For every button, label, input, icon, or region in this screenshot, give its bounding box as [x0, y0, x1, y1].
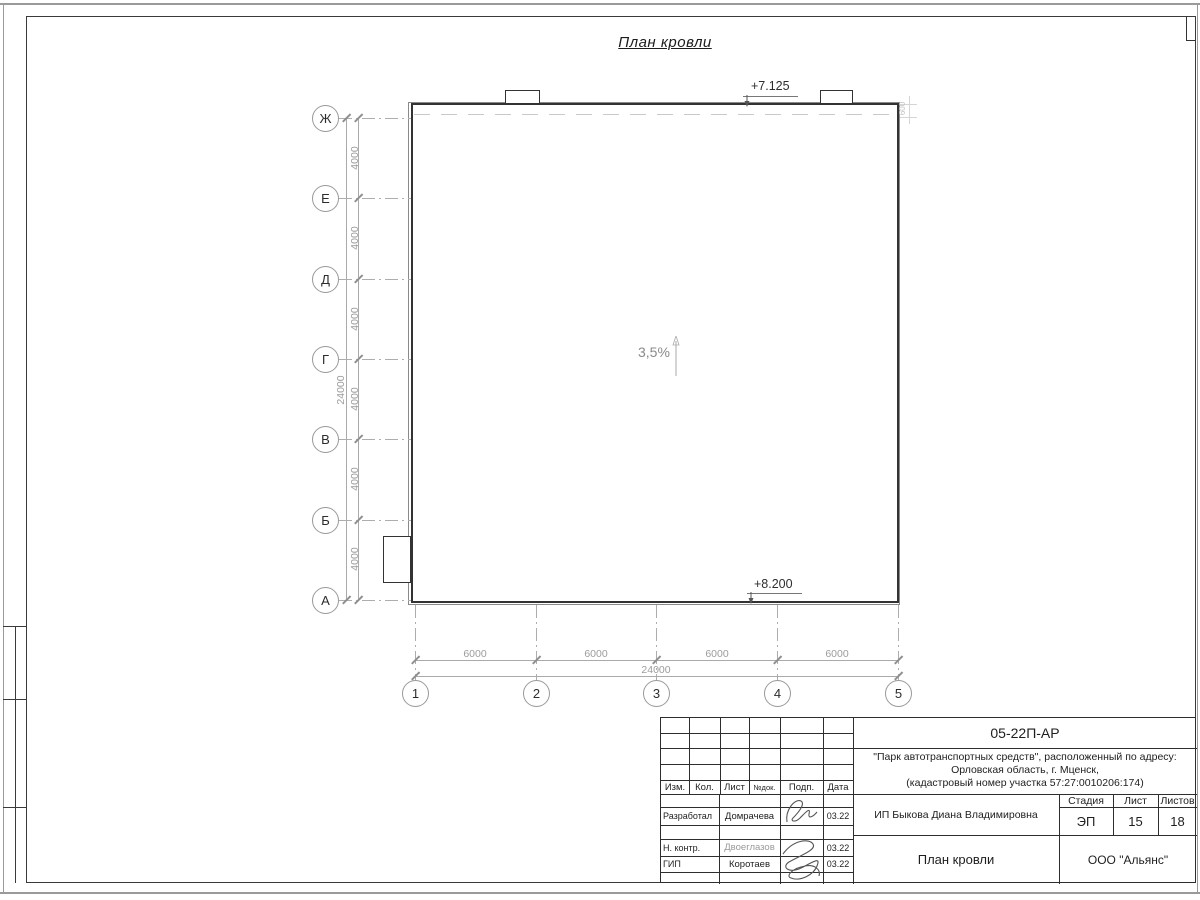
dim-label-left: 4000: [349, 539, 361, 579]
axis-number: 1: [412, 686, 419, 701]
elevation-bottom-arrow-icon: [746, 592, 756, 604]
axis-bubble-bottom: 5: [885, 680, 912, 707]
tb-company: ООО "Альянс": [1059, 835, 1197, 884]
axis-letter: Г: [322, 352, 329, 367]
corner-cell-line: [1186, 17, 1187, 40]
axis-line-a: [339, 600, 411, 601]
paper-edge-right: [1197, 3, 1198, 893]
axis-line-4: [777, 605, 778, 680]
axis-bubble-left: Е: [312, 185, 339, 212]
paper-edge-bottom: [0, 892, 1200, 894]
axis-letter: Ж: [319, 111, 331, 126]
axis-bubble-bottom: 3: [643, 680, 670, 707]
tb-role: ГИП: [663, 856, 719, 872]
axis-number: 2: [533, 686, 540, 701]
axis-bubble-left: В: [312, 426, 339, 453]
tb-stage-value: ЭП: [1059, 807, 1113, 835]
axis-letter: В: [321, 432, 330, 447]
dim-label-left: 4000: [349, 138, 361, 178]
axis-bubble-bottom: 2: [523, 680, 550, 707]
tb-doc-code: 05-22П-АР: [853, 718, 1197, 748]
tb-header-ndok: №док.: [749, 780, 780, 794]
dim-line-bottom-total: [415, 676, 899, 677]
axis-number: 5: [895, 686, 902, 701]
tb-project-description: "Парк автотранспортных средств", располо…: [857, 751, 1193, 790]
elevation-top-arrow-icon: [742, 95, 752, 107]
tb-header-list: Лист: [720, 780, 749, 794]
corner-cell-line: [1186, 40, 1196, 41]
tb-sheet-title: План кровли: [853, 835, 1059, 884]
axis-number: 3: [653, 686, 660, 701]
dim-label-bottom: 6000: [692, 648, 742, 660]
dim-label-bottom: 6000: [571, 648, 621, 660]
signature-icon: [781, 796, 823, 828]
dim-label-left: 4000: [349, 218, 361, 258]
axis-line-5: [898, 605, 899, 680]
tb-name: Домрачева: [719, 807, 780, 825]
dim-label-bottom: 6000: [812, 648, 862, 660]
drawing-sheet: План кровли +7.125 +8.200 3,5% 600 Ж Е Д…: [0, 0, 1200, 900]
tb-role: Н. контр.: [663, 839, 719, 856]
dim-label-left: 4000: [349, 459, 361, 499]
axis-bubble-left: Б: [312, 507, 339, 534]
tb-project-line1: "Парк автотранспортных средств", располо…: [857, 751, 1193, 764]
paper-edge-top: [0, 3, 1200, 5]
tb-name: Двоеглазов: [719, 839, 780, 856]
tb-sheet-value: 15: [1113, 807, 1158, 835]
parapet-dim-line: [909, 96, 910, 124]
elevation-top-label: +7.125: [751, 79, 790, 93]
slope-label: 3,5%: [638, 344, 670, 360]
axis-bubble-bottom: 1: [402, 680, 429, 707]
dim-label-bottom: 6000: [450, 648, 500, 660]
tb-header-podp: Подп.: [780, 780, 823, 794]
axis-line-d: [339, 279, 411, 280]
tb-stage-label: Стадия: [1059, 794, 1113, 807]
tb-project-line2: Орловская область, г. Мценск,: [857, 764, 1193, 777]
slope-arrow-icon: [671, 336, 681, 376]
wall-protrusion-left: [383, 536, 411, 583]
axis-number: 4: [774, 686, 781, 701]
axis-bubble-bottom: 4: [764, 680, 791, 707]
elevation-bottom-label: +8.200: [754, 577, 793, 591]
axis-letter: Е: [321, 191, 330, 206]
tb-date: 03.22: [823, 839, 853, 856]
axis-line-e: [339, 198, 411, 199]
tb-header-data: Дата: [823, 780, 853, 794]
axis-letter: Б: [321, 513, 330, 528]
drawing-title: План кровли: [560, 34, 770, 51]
dim-line-left-total: [346, 118, 347, 600]
left-strip-divider: [15, 626, 16, 883]
axis-letter: А: [321, 593, 330, 608]
tb-sheet-label: Лист: [1113, 794, 1158, 807]
tb-sheets-value: 18: [1158, 807, 1197, 835]
roof-vent-left: [505, 90, 540, 104]
tb-role: Разработал: [663, 807, 719, 825]
tb-date: 03.22: [823, 807, 853, 825]
tb-date: 03.22: [823, 856, 853, 872]
parapet-dim-label: 600: [898, 102, 907, 115]
axis-bubble-left: А: [312, 587, 339, 614]
tb-header-izm: Изм.: [661, 780, 689, 794]
axis-bubble-left: Д: [312, 266, 339, 293]
axis-bubble-left: Г: [312, 346, 339, 373]
dim-label-left: 4000: [349, 299, 361, 339]
paper-edge-left: [3, 3, 4, 893]
tb-sheets-label: Листов: [1158, 794, 1197, 807]
tb-name: Коротаев: [719, 856, 780, 872]
title-block: Изм. Кол. Лист №док. Подп. Дата Разработ…: [660, 717, 1196, 883]
dim-label-left-total: 24000: [335, 370, 347, 410]
axis-line-1: [415, 605, 416, 680]
parapet-dashed-line: [414, 114, 896, 115]
axis-line-g: [339, 359, 411, 360]
tb-customer: ИП Быкова Диана Владимировна: [853, 794, 1059, 835]
axis-line-v: [339, 439, 411, 440]
dim-label-left: 4000: [349, 379, 361, 419]
axis-line-zh: [339, 118, 411, 119]
axis-line-b: [339, 520, 411, 521]
dim-label-bottom-total: 24000: [631, 664, 681, 676]
roof-vent-right: [820, 90, 853, 104]
axis-letter: Д: [321, 272, 330, 287]
signature-icon: [779, 836, 825, 884]
axis-line-2: [536, 605, 537, 680]
axis-bubble-left: Ж: [312, 105, 339, 132]
tb-header-kol: Кол.: [689, 780, 720, 794]
tb-project-line3: (кадастровый номер участка 57:27:0010206…: [857, 777, 1193, 790]
